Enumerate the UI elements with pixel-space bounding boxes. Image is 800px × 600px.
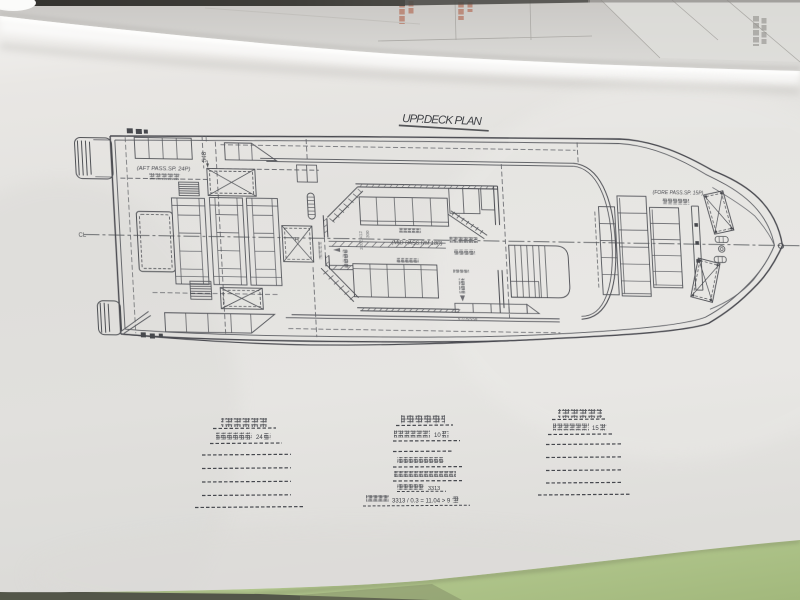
svg-text:300: 300	[365, 230, 370, 238]
svg-text:(MID PASS.RM 18P): (MID PASS.RM 18P)	[392, 240, 443, 247]
svg-text:3313 / 0.3 = 11.04 > 9: 3313 / 0.3 = 11.04 > 9	[392, 499, 451, 505]
svg-text:(FORE PASS.SP. 15P): (FORE PASS.SP. 15P)	[653, 190, 704, 197]
svg-text:3313: 3313	[428, 486, 440, 492]
svg-text:3202,412: 3202,412	[358, 231, 364, 250]
svg-text:24: 24	[256, 435, 263, 441]
svg-text:15: 15	[592, 426, 599, 432]
svg-text:S.U.DOOR: S.U.DOOR	[458, 316, 478, 321]
svg-text:H: H	[294, 238, 299, 244]
svg-text:10: 10	[434, 433, 441, 439]
svg-text:CL: CL	[78, 233, 87, 239]
svg-text:(AFT PASS.SP. 24P): (AFT PASS.SP. 24P)	[137, 166, 191, 173]
